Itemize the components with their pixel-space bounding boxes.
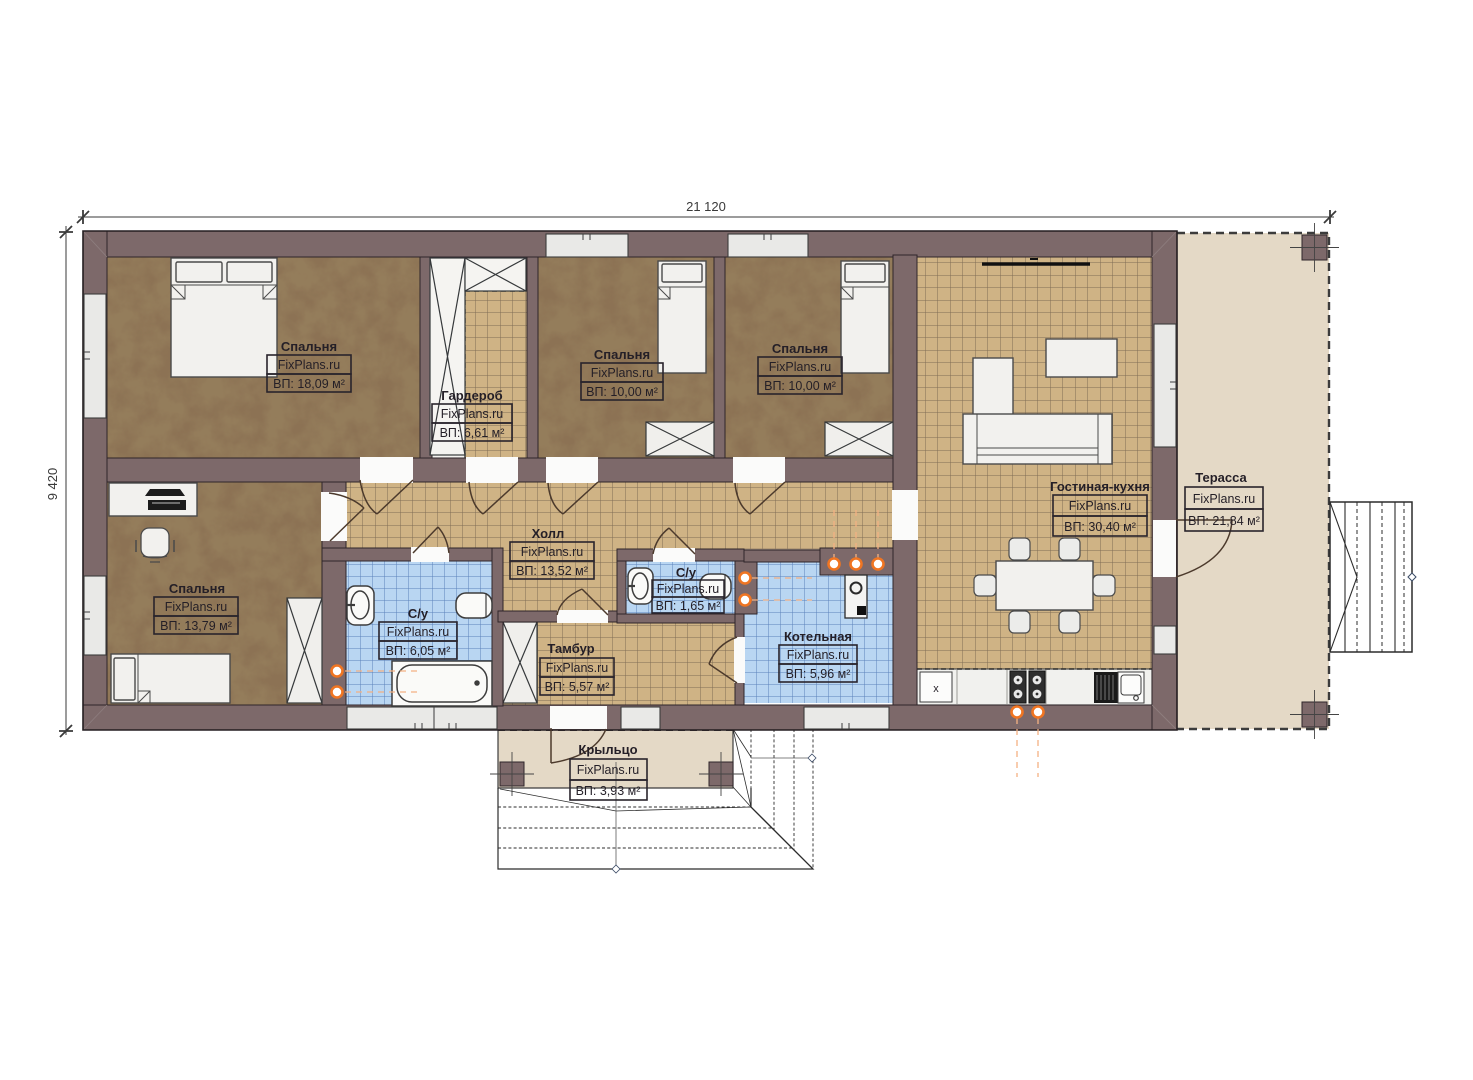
svg-text:Тамбур: Тамбур: [547, 641, 594, 656]
svg-text:Котельная: Котельная: [784, 629, 852, 644]
svg-text:FixPlans.ru: FixPlans.ru: [521, 545, 584, 559]
svg-text:FixPlans.ru: FixPlans.ru: [1193, 492, 1256, 506]
svg-text:FixPlans.ru: FixPlans.ru: [1069, 499, 1132, 513]
svg-text:FixPlans.ru: FixPlans.ru: [278, 358, 341, 372]
svg-text:ВП: 13,52 м²: ВП: 13,52 м²: [516, 564, 588, 578]
svg-text:x: x: [933, 683, 939, 695]
svg-text:ВП: 10,00 м²: ВП: 10,00 м²: [764, 379, 836, 393]
svg-text:Холл: Холл: [532, 526, 565, 541]
svg-text:9 420: 9 420: [45, 468, 60, 501]
svg-text:ВП: 6,05 м²: ВП: 6,05 м²: [386, 644, 451, 658]
svg-text:21 120: 21 120: [686, 199, 726, 214]
svg-text:ВП: 10,00 м²: ВП: 10,00 м²: [586, 385, 658, 399]
svg-text:FixPlans.ru: FixPlans.ru: [591, 366, 654, 380]
svg-text:ВП: 5,96 м²: ВП: 5,96 м²: [786, 667, 851, 681]
svg-text:ВП: 13,79 м²: ВП: 13,79 м²: [160, 619, 232, 633]
svg-text:Спальня: Спальня: [594, 347, 650, 362]
svg-text:ВП: 1,65 м²: ВП: 1,65 м²: [656, 599, 721, 613]
svg-text:ВП: 21,84 м²: ВП: 21,84 м²: [1188, 514, 1260, 528]
svg-text:Спальня: Спальня: [281, 339, 337, 354]
svg-text:FixPlans.ru: FixPlans.ru: [546, 661, 609, 675]
svg-text:ВП: 6,61 м²: ВП: 6,61 м²: [440, 426, 505, 440]
svg-text:ВП: 30,40 м²: ВП: 30,40 м²: [1064, 520, 1136, 534]
svg-text:Спальня: Спальня: [169, 581, 225, 596]
svg-text:FixPlans.ru: FixPlans.ru: [657, 582, 720, 596]
svg-text:FixPlans.ru: FixPlans.ru: [441, 407, 504, 421]
svg-text:FixPlans.ru: FixPlans.ru: [387, 625, 450, 639]
svg-text:ВП: 18,09 м²: ВП: 18,09 м²: [273, 377, 345, 391]
svg-text:FixPlans.ru: FixPlans.ru: [165, 600, 228, 614]
svg-text:Спальня: Спальня: [772, 341, 828, 356]
svg-text:ВП: 3,93 м²: ВП: 3,93 м²: [576, 784, 641, 798]
svg-text:Гардероб: Гардероб: [441, 388, 502, 403]
svg-text:Терасса: Терасса: [1195, 470, 1247, 485]
svg-text:ВП: 5,57 м²: ВП: 5,57 м²: [545, 680, 610, 694]
svg-text:FixPlans.ru: FixPlans.ru: [577, 763, 640, 777]
svg-text:Крыльцо: Крыльцо: [578, 742, 637, 757]
svg-text:С/у: С/у: [676, 565, 697, 580]
svg-text:FixPlans.ru: FixPlans.ru: [769, 360, 832, 374]
svg-text:FixPlans.ru: FixPlans.ru: [787, 648, 850, 662]
svg-text:С/у: С/у: [408, 606, 429, 621]
svg-text:Гостиная-кухня: Гостиная-кухня: [1050, 479, 1150, 494]
